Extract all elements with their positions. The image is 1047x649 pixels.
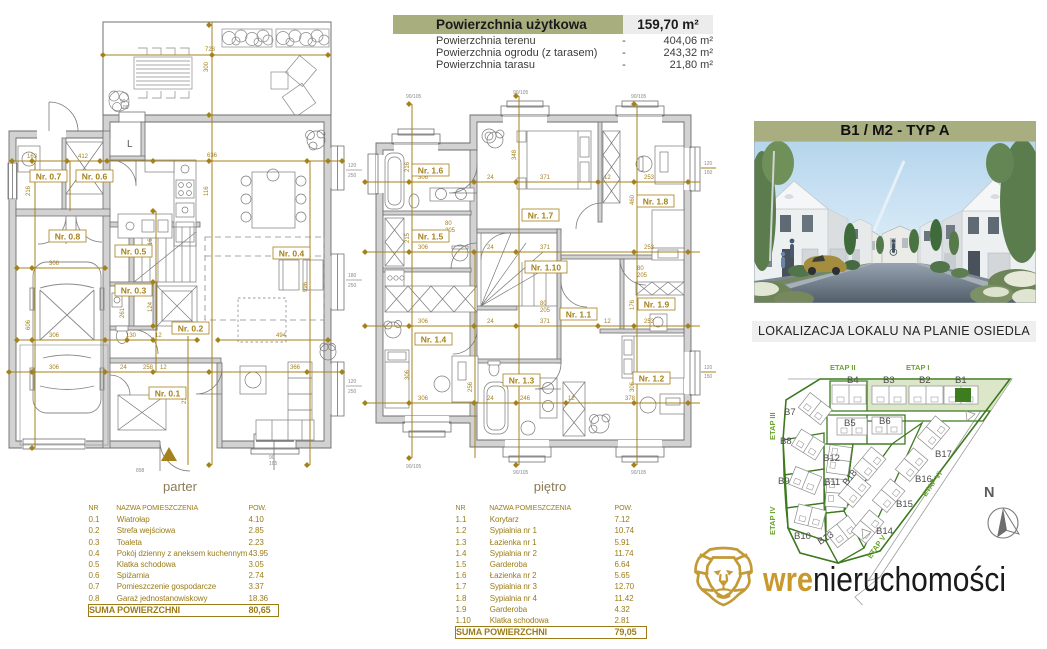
svg-text:Nr. 1.4: Nr. 1.4 bbox=[421, 335, 447, 345]
svg-text:B15: B15 bbox=[896, 499, 913, 510]
svg-text:256: 256 bbox=[468, 381, 474, 392]
svg-text:24: 24 bbox=[487, 245, 494, 251]
svg-text:90/105: 90/105 bbox=[631, 94, 647, 100]
svg-text:80: 80 bbox=[445, 221, 452, 227]
svg-text:90/105: 90/105 bbox=[406, 94, 422, 100]
svg-text:130: 130 bbox=[126, 333, 137, 339]
svg-text:150: 150 bbox=[704, 374, 713, 380]
svg-text:366: 366 bbox=[290, 365, 301, 371]
svg-text:B3: B3 bbox=[883, 375, 895, 386]
svg-text:L: L bbox=[127, 139, 133, 150]
svg-text:116: 116 bbox=[204, 186, 210, 196]
svg-text:176: 176 bbox=[630, 299, 636, 310]
svg-text:216: 216 bbox=[405, 161, 411, 172]
svg-text:Nr. 0.1: Nr. 0.1 bbox=[155, 389, 181, 399]
svg-text:B1: B1 bbox=[955, 375, 967, 386]
svg-text:90/105: 90/105 bbox=[406, 464, 422, 470]
svg-text:Nr. 1.3: Nr. 1.3 bbox=[509, 376, 535, 386]
svg-text:Nr. 0.6: Nr. 0.6 bbox=[82, 172, 108, 182]
svg-text:606: 606 bbox=[26, 319, 32, 330]
svg-text:306: 306 bbox=[418, 245, 429, 251]
svg-text:N: N bbox=[984, 485, 994, 501]
svg-text:B2: B2 bbox=[919, 375, 931, 386]
svg-text:24: 24 bbox=[487, 396, 494, 402]
svg-text:ETAP III: ETAP III bbox=[768, 412, 777, 440]
svg-text:261: 261 bbox=[120, 307, 126, 318]
svg-text:105: 105 bbox=[120, 105, 129, 111]
svg-text:Nr. 0.5: Nr. 0.5 bbox=[121, 247, 147, 257]
svg-text:253: 253 bbox=[644, 319, 655, 325]
svg-text:90/105: 90/105 bbox=[513, 90, 529, 96]
svg-text:B4: B4 bbox=[847, 375, 859, 386]
svg-text:Nr. 1.10: Nr. 1.10 bbox=[531, 263, 562, 273]
svg-text:306: 306 bbox=[405, 369, 411, 380]
svg-text:24: 24 bbox=[487, 319, 494, 325]
svg-text:105: 105 bbox=[269, 461, 278, 467]
svg-text:80: 80 bbox=[540, 301, 547, 307]
svg-text:24: 24 bbox=[120, 365, 127, 371]
svg-text:348: 348 bbox=[512, 149, 518, 160]
svg-text:12: 12 bbox=[160, 365, 167, 371]
svg-text:Nr. 0.7: Nr. 0.7 bbox=[36, 172, 62, 182]
svg-text:371: 371 bbox=[540, 175, 551, 181]
svg-text:12: 12 bbox=[568, 396, 575, 402]
svg-text:996: 996 bbox=[303, 281, 309, 292]
svg-text:898: 898 bbox=[136, 468, 145, 474]
svg-text:728: 728 bbox=[205, 47, 216, 53]
svg-text:B12: B12 bbox=[823, 453, 840, 464]
svg-text:80: 80 bbox=[637, 266, 644, 272]
svg-text:205: 205 bbox=[540, 308, 551, 314]
svg-text:412: 412 bbox=[78, 154, 89, 160]
svg-text:124: 124 bbox=[148, 301, 154, 312]
svg-text:215: 215 bbox=[405, 232, 411, 243]
svg-text:246: 246 bbox=[520, 396, 531, 402]
svg-text:378: 378 bbox=[625, 396, 636, 402]
svg-text:306: 306 bbox=[49, 365, 60, 371]
svg-text:300: 300 bbox=[204, 61, 210, 72]
svg-text:494: 494 bbox=[276, 333, 287, 339]
svg-text:90/105: 90/105 bbox=[631, 470, 647, 476]
svg-text:B9: B9 bbox=[778, 476, 790, 487]
svg-text:636: 636 bbox=[207, 153, 218, 159]
svg-text:306: 306 bbox=[418, 319, 429, 325]
svg-text:B11: B11 bbox=[824, 477, 840, 488]
svg-text:Nr. 0.2: Nr. 0.2 bbox=[178, 324, 204, 334]
svg-text:460: 460 bbox=[630, 194, 636, 205]
svg-text:Nr. 1.6: Nr. 1.6 bbox=[418, 166, 444, 176]
svg-text:253: 253 bbox=[644, 245, 655, 251]
svg-text:B8: B8 bbox=[780, 436, 792, 447]
svg-text:371: 371 bbox=[540, 319, 551, 325]
svg-text:Nr. 1.7: Nr. 1.7 bbox=[528, 211, 554, 221]
svg-text:216: 216 bbox=[26, 185, 32, 196]
svg-text:wre: wre bbox=[762, 561, 813, 599]
svg-text:ETAP IV: ETAP IV bbox=[768, 507, 777, 535]
svg-text:B17: B17 bbox=[935, 449, 952, 460]
svg-text:253: 253 bbox=[644, 175, 655, 181]
svg-text:Nr. 1.5: Nr. 1.5 bbox=[418, 232, 444, 242]
svg-text:90/105: 90/105 bbox=[513, 470, 529, 476]
svg-text:B7: B7 bbox=[784, 407, 796, 418]
svg-text:150: 150 bbox=[704, 170, 713, 176]
svg-text:ETAP II: ETAP II bbox=[830, 363, 856, 372]
svg-text:258: 258 bbox=[143, 365, 154, 371]
svg-text:B5: B5 bbox=[844, 418, 856, 429]
svg-text:163: 163 bbox=[27, 154, 38, 160]
svg-text:306: 306 bbox=[49, 333, 60, 339]
svg-text:306: 306 bbox=[418, 396, 429, 402]
svg-text:306: 306 bbox=[49, 261, 60, 267]
svg-text:205: 205 bbox=[637, 273, 648, 279]
svg-text:Nr. 1.8: Nr. 1.8 bbox=[643, 197, 669, 207]
svg-text:24: 24 bbox=[487, 175, 494, 181]
svg-text:120: 120 bbox=[704, 161, 713, 167]
svg-text:120: 120 bbox=[704, 365, 713, 371]
svg-text:nieruchomości: nieruchomości bbox=[813, 561, 1006, 599]
svg-text:B10: B10 bbox=[794, 531, 811, 542]
svg-text:12: 12 bbox=[604, 175, 611, 181]
svg-text:Nr. 0.3: Nr. 0.3 bbox=[121, 286, 147, 296]
svg-text:Nr. 1.1: Nr. 1.1 bbox=[566, 310, 592, 320]
svg-text:12: 12 bbox=[604, 319, 611, 325]
svg-text:Nr. 1.9: Nr. 1.9 bbox=[644, 300, 670, 310]
svg-text:Nr. 1.2: Nr. 1.2 bbox=[639, 374, 665, 384]
svg-text:Nr. 0.4: Nr. 0.4 bbox=[279, 249, 305, 259]
svg-text:12: 12 bbox=[155, 333, 162, 339]
svg-text:371: 371 bbox=[540, 245, 551, 251]
svg-text:B6: B6 bbox=[879, 416, 891, 427]
svg-text:ETAP I: ETAP I bbox=[906, 363, 929, 372]
svg-text:Nr. 0.8: Nr. 0.8 bbox=[55, 232, 81, 242]
